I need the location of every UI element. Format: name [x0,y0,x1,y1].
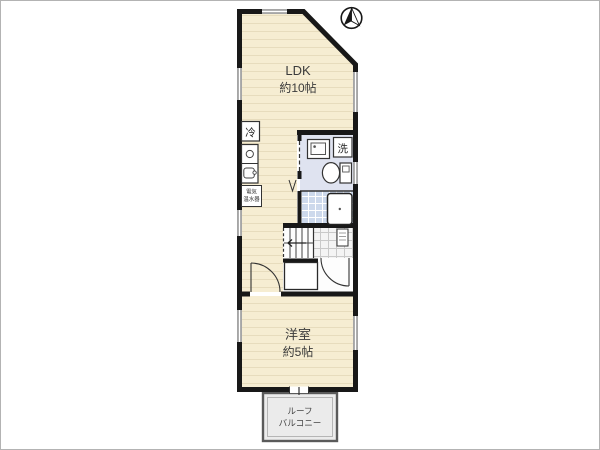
washing-machine-box: 洗 [334,138,353,158]
refrigerator-label: 冷 [245,126,256,139]
under-stair-space [285,263,318,290]
ldk-size: 約10帖 [279,80,316,95]
water-heater-box: 電気 温水器 [242,186,262,207]
toilet-icon [322,163,351,183]
kitchen-area: 冷 電気 温水器 [242,122,262,207]
balcony-label-line1: ルーフ [287,406,312,416]
water-heater-label-line2: 温水器 [243,195,260,203]
western-room-name: 洋室 [285,327,311,342]
stove-icon [246,150,253,157]
refrigerator-box: 冷 [242,122,260,142]
floor-plan-page: ルーフ バルコニー [0,0,600,450]
western-room-size: 約5帖 [283,344,314,359]
north-arrow-icon [341,8,362,29]
roof-balcony: ルーフ バルコニー [263,393,337,441]
washing-machine-label: 洗 [338,143,349,155]
water-heater-label-line1: 電気 [246,188,257,196]
floor-plan: ルーフ バルコニー [0,0,600,450]
bathroom [328,194,353,225]
kitchen-counter [242,145,259,184]
meter-box [337,229,348,246]
sink-icon [244,168,257,178]
washbasin-icon [308,140,330,159]
western-room-floor [242,296,353,388]
ldk-name: LDK [285,63,311,78]
balcony-label-line2: バルコニー [279,418,322,428]
